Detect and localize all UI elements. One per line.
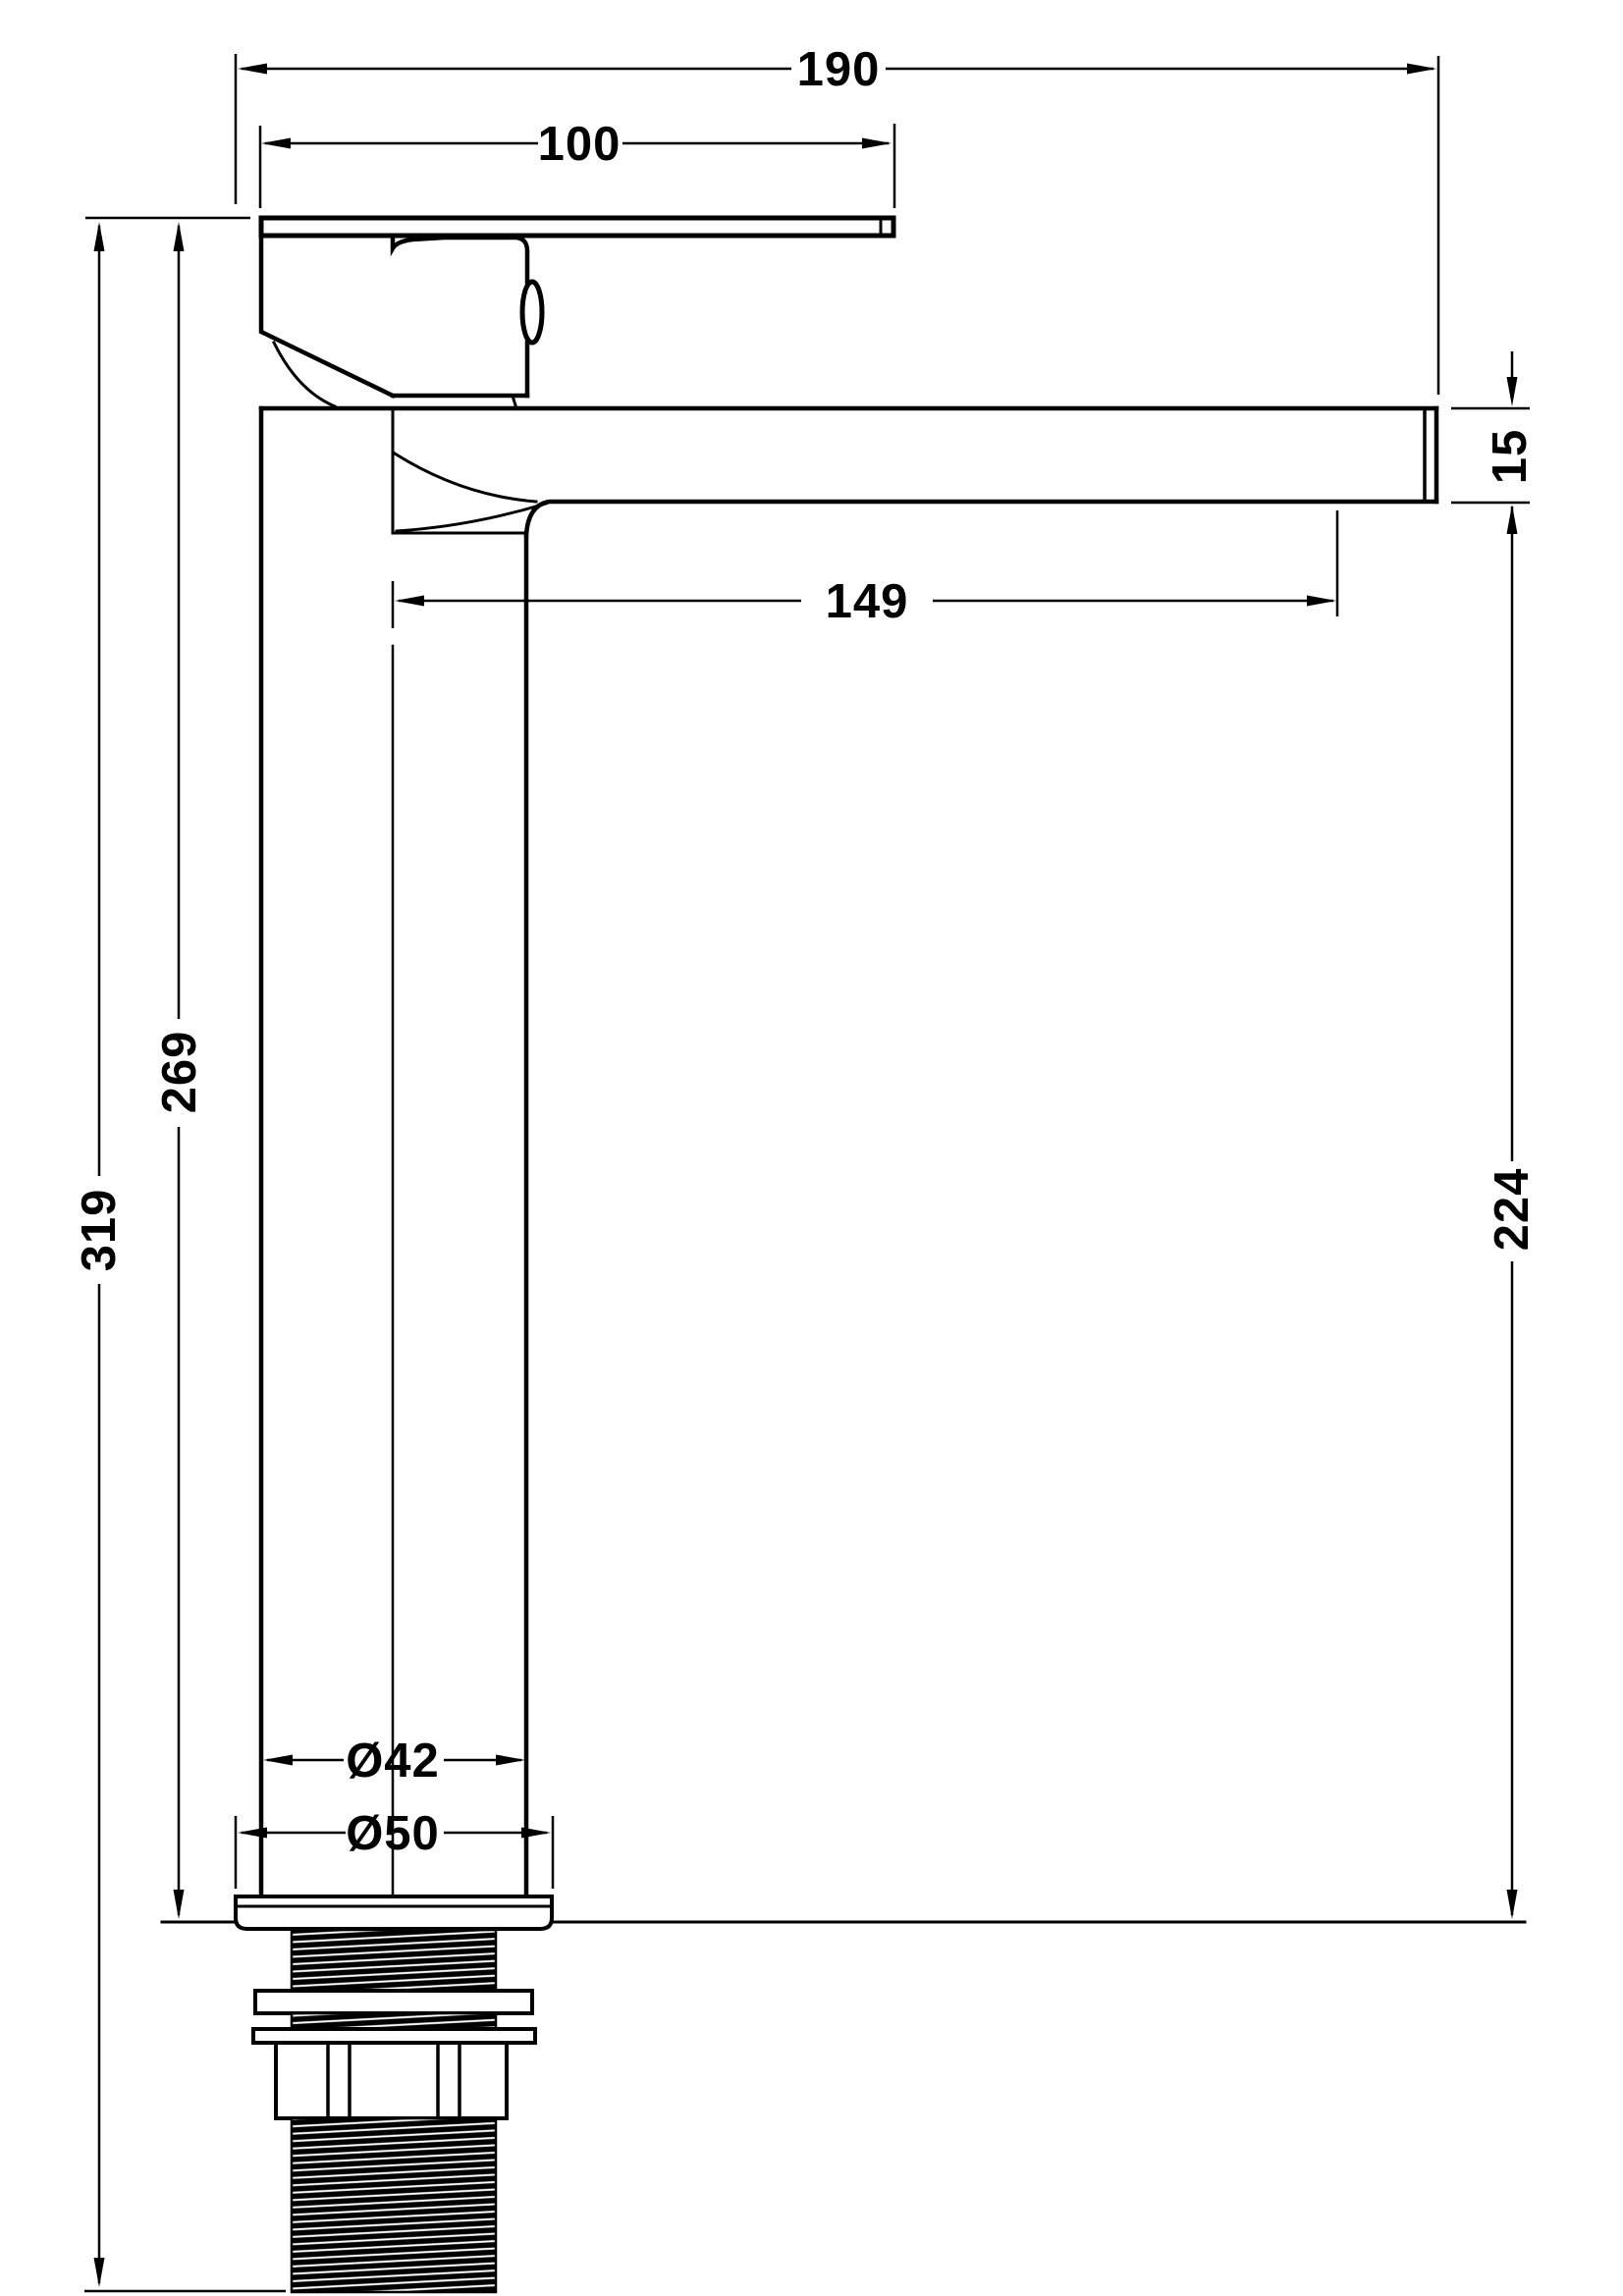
dim-label-190: 190	[797, 43, 881, 96]
dim-label-100: 100	[538, 118, 622, 171]
dim-label-149: 149	[826, 575, 909, 628]
dim-label-319: 319	[73, 1189, 126, 1272]
drawing-background	[0, 0, 1623, 2296]
dim-label-15: 15	[1484, 429, 1537, 485]
handle-indicator-button	[522, 282, 542, 343]
thread-upper	[292, 1930, 496, 1991]
dim-label-50: Ø50	[346, 1807, 440, 1860]
handle-lever	[261, 218, 893, 236]
washer-lower	[253, 2029, 535, 2043]
dim-label-269: 269	[153, 1031, 206, 1114]
thread-lower	[292, 2118, 496, 2292]
thread-middle	[292, 2013, 496, 2029]
washer-upper	[255, 1991, 532, 2013]
backnut	[276, 2043, 507, 2118]
base-flange	[236, 1896, 552, 1929]
technical-drawing-page: 190 100 149	[0, 0, 1623, 2296]
dim-label-42: Ø42	[346, 1735, 440, 1788]
faucet-dimension-drawing: 190 100 149	[0, 0, 1623, 2296]
threaded-shank	[253, 1930, 535, 2292]
dim-label-224: 224	[1486, 1168, 1539, 1252]
